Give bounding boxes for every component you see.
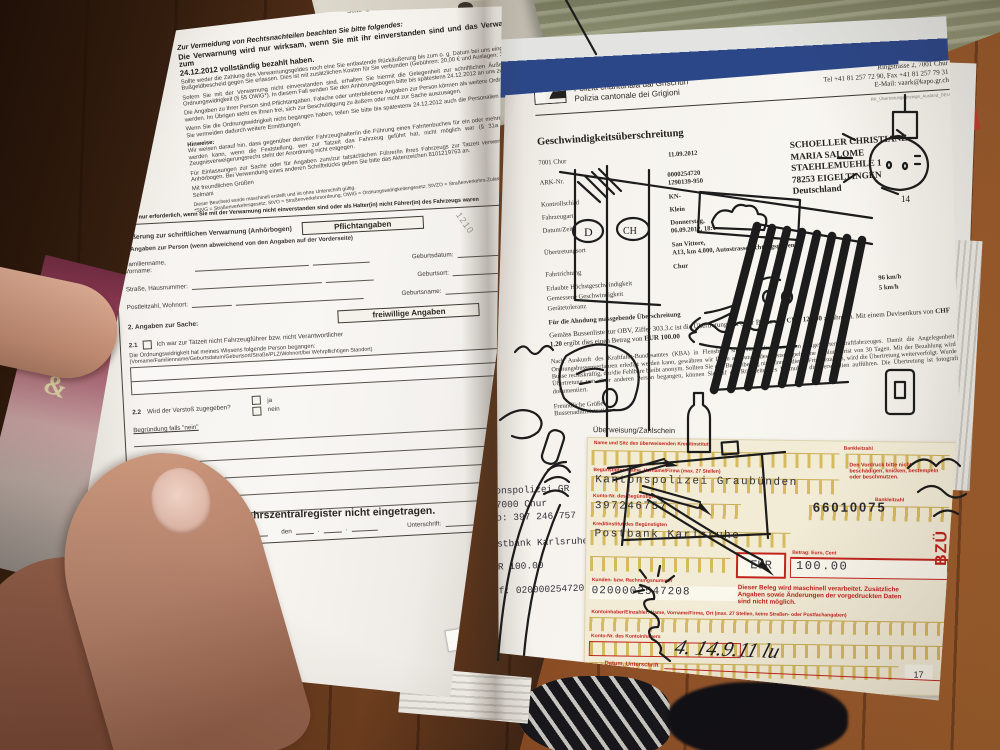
field-birthdate-label: Geburtsdatum: <box>412 251 454 260</box>
field-name-input <box>195 265 309 272</box>
field-street-label: Straße, Hausnummer: <box>126 283 188 293</box>
photo-scene: S & Seite -2- Zur Vermeidung von Rechtsn… <box>0 0 1000 750</box>
ticket-letter: Kantonspolizei Graubünden Polizia chantu… <box>533 51 969 418</box>
info-label-gemessen: Gemessene Geschwindigkeit <box>547 291 624 303</box>
yes-label: ja <box>267 397 279 405</box>
slip-label-blz-top: Bankleitzahl <box>844 447 873 453</box>
item21-number: 2.1 <box>129 342 138 349</box>
info-label-datum: Datum/Zeit <box>542 226 573 235</box>
item22-text: Wird der Verstoß zugegeben? <box>147 404 231 415</box>
freiwillige-badge: freiwillige Angaben <box>338 303 480 323</box>
slip-value-bank: Postbank Karlsruhe <box>594 528 740 542</box>
slip-comb-5 <box>590 556 730 573</box>
sneaker-shoe <box>518 676 670 750</box>
ticket-date: 11.09.2012 <box>668 150 698 159</box>
fine-amount-chf: CHF 120.00 <box>786 314 822 324</box>
field-birthplace-label: Geburtsort: <box>417 270 449 279</box>
field-name-label: Familienname, Vorname: <box>124 258 191 275</box>
addressee-block: SCHOELLER CHRISTIANE MARIA SALOME STAEHL… <box>789 133 910 198</box>
info-label-fahrtrichtung: Fahrtrichtung <box>545 269 581 278</box>
den-y <box>351 530 377 532</box>
ticket-place: 7001 Chur <box>538 158 566 167</box>
info-value-gemessen: 96 km/h <box>878 273 901 281</box>
slip-value-amount: 100.00 <box>796 559 848 574</box>
right-page: Kantonspolizei Graubünden Polizia chantu… <box>495 55 960 705</box>
info-value-datum2: 06.09.2012, 18:1 <box>671 225 716 235</box>
info-value-toleranz: 5 km/h <box>879 283 899 291</box>
no-label: nein <box>268 406 280 414</box>
slip-comb-1 <box>591 450 839 468</box>
slip-handwritten-blz: 66010075 <box>813 500 887 515</box>
bzu-code: BZÜ <box>933 530 951 566</box>
info-label-ark: ARK-Nr. <box>539 178 564 187</box>
form-section2: 2. Angaben zur Sache: <box>128 321 199 332</box>
den-d <box>296 533 314 535</box>
yes-checkbox <box>252 396 261 405</box>
date-signature-label: Datum, Unterschrift <box>604 661 658 669</box>
info-value-fahrzeugart: Klein <box>669 206 685 214</box>
signature-label: Unterschrift: <box>407 520 441 529</box>
field-name-input2 <box>313 262 370 266</box>
info-label-toleranz: Gerätetoleranz <box>547 303 586 312</box>
field-zip-label: Postleitzahl, Wohnort: <box>127 301 188 311</box>
currency-code: EUR <box>750 558 772 572</box>
info-label-ort: Übertretungsort <box>544 247 586 257</box>
no-checkbox <box>253 407 262 416</box>
field-street-input2 <box>326 280 374 284</box>
fine-amount-eur: EUR 100.00 <box>644 332 680 342</box>
info-value-kontrollschild: KN- <box>669 193 682 201</box>
slip-label-bank-sender: Name und Sitz des überweisenden Kreditin… <box>594 441 794 449</box>
field-street-input <box>192 282 322 290</box>
item21-checkbox <box>142 340 151 349</box>
slip-value-account: 397246757 <box>595 500 668 513</box>
book-gutter-shadow <box>456 0 535 721</box>
info-value-fahrtrichtung: Chur <box>673 263 688 271</box>
den-label: den <box>281 528 292 536</box>
handling-notice: Den Vordruck bitte nicht beschädigen, kn… <box>849 462 945 480</box>
slip-value-reference: 0200002547208 <box>592 585 691 598</box>
info-label-kontrollschild: Kontrollschild <box>541 199 579 208</box>
field-zip-input2 <box>236 298 364 306</box>
field-birthname-label: Geburtsname: <box>401 288 441 297</box>
info-value-ark2: 1290139-950 <box>668 178 704 187</box>
field-zip-input <box>192 305 232 308</box>
machine-notice: Dieser Beleg wird maschinell verarbeitet… <box>737 584 913 608</box>
den-m <box>324 532 342 534</box>
currency-box: EUR <box>736 552 786 579</box>
item22-number: 2.2 <box>132 408 141 415</box>
info-label-fahrzeugart: Fahrzeugart <box>542 213 574 222</box>
dark-shoe <box>668 682 848 750</box>
